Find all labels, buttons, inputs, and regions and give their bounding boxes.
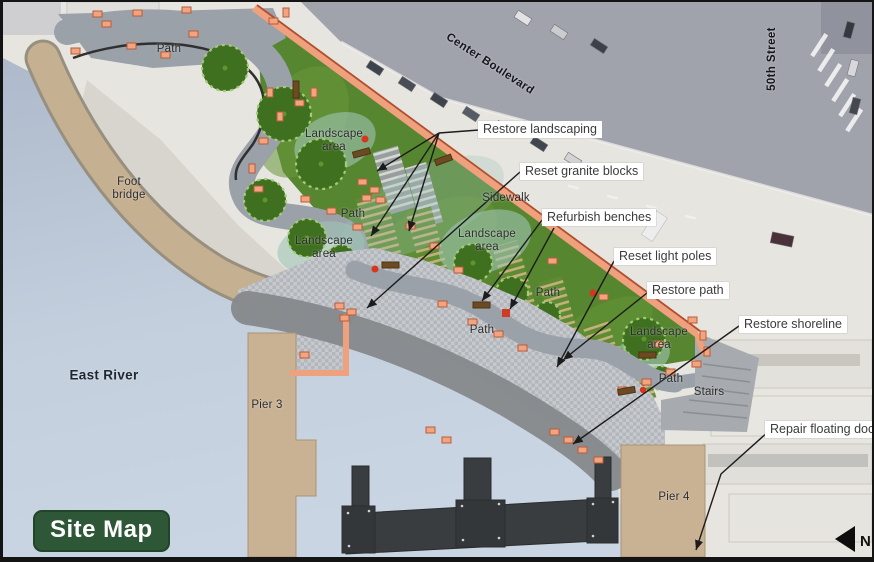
label-sidewalk: Sidewalk <box>482 192 530 204</box>
north-label: N <box>860 533 871 550</box>
callout-repair-floating-dock: Repair floating dock <box>765 421 874 438</box>
label-pier-3: Pier 3 <box>251 399 282 411</box>
callout-reset-granite-blocks: Reset granite blocks <box>520 163 643 180</box>
label-landscape-area-2: Landscape area <box>293 235 355 261</box>
label-path-1: Path <box>157 43 181 55</box>
label-pier-4: Pier 4 <box>658 491 689 503</box>
label-landscape-area-4: Landscape area <box>628 326 690 352</box>
label-foot-bridge: Foot bridge <box>106 176 152 202</box>
label-50th-street: 50th Street <box>766 27 778 91</box>
label-path-5: Path <box>659 373 683 385</box>
callout-restore-path: Restore path <box>647 282 729 299</box>
label-landscape-area-1: Landscape area <box>303 128 365 154</box>
map-artwork <box>3 2 872 557</box>
callout-reset-light-poles: Reset light poles <box>614 248 716 265</box>
callout-refurbish-benches: Refurbish benches <box>542 209 656 226</box>
callout-restore-shoreline: Restore shoreline <box>739 316 847 333</box>
label-landscape-area-3: Landscape area <box>456 228 518 254</box>
label-path-3: Path <box>536 287 560 299</box>
label-path-4: Path <box>470 324 494 336</box>
label-stairs: Stairs <box>694 386 725 398</box>
site-map-figure: Path Path Path Path Path Landscape area … <box>0 0 874 562</box>
label-east-river: East River <box>69 368 138 383</box>
label-path-2: Path <box>341 208 365 220</box>
callout-restore-landscaping: Restore landscaping <box>478 121 602 138</box>
site-map-badge: Site Map <box>33 510 170 552</box>
